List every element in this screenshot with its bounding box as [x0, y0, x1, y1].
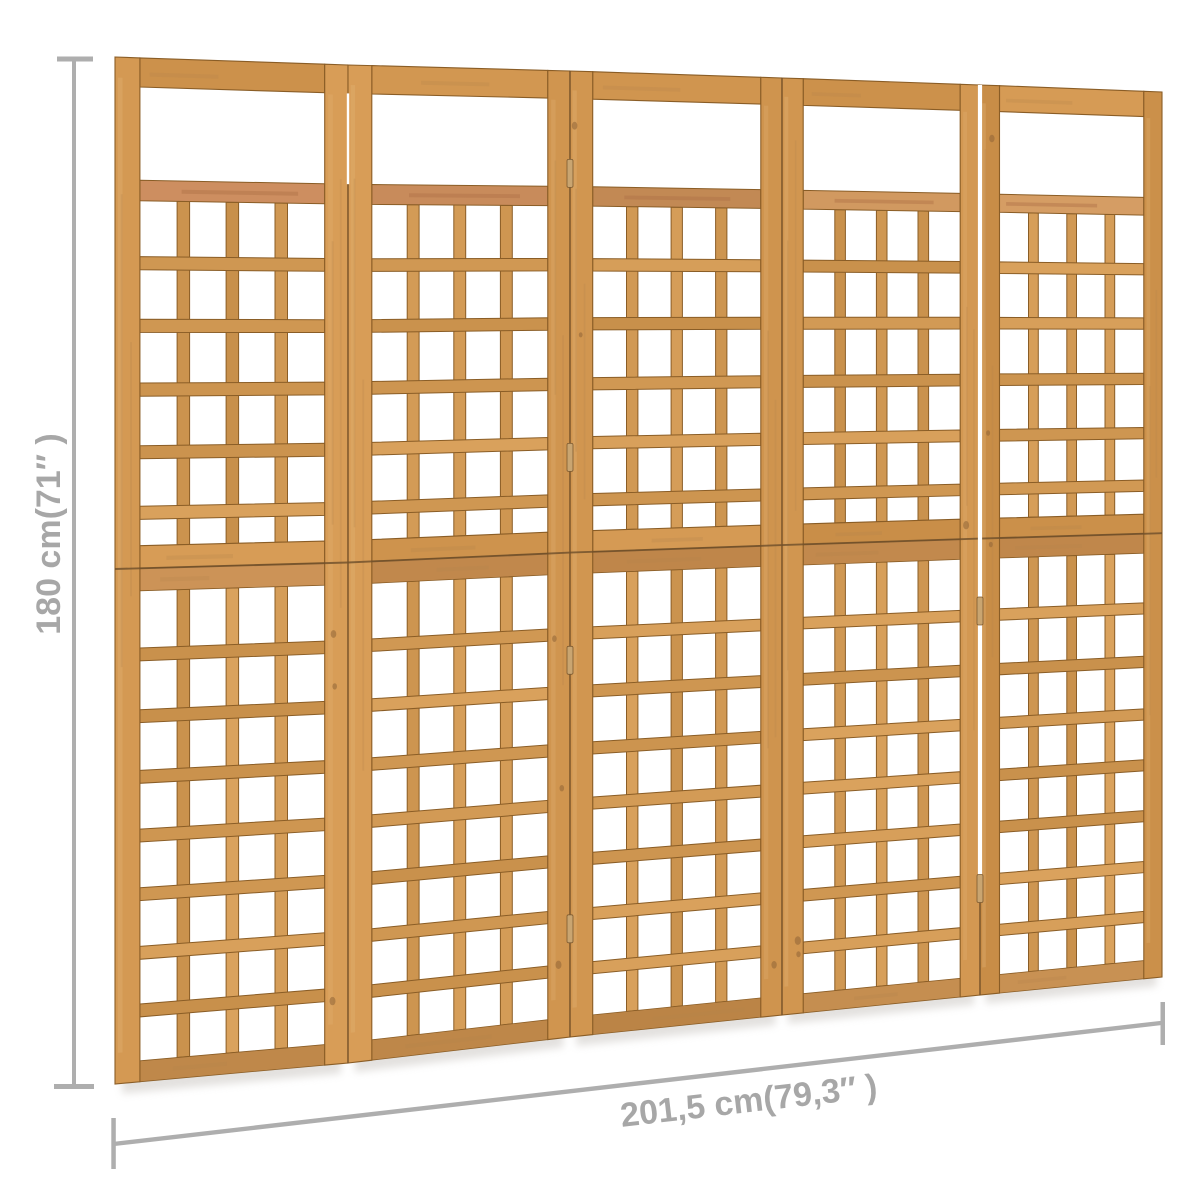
svg-text:180 cm(71″ ): 180 cm(71″ )	[30, 433, 68, 635]
